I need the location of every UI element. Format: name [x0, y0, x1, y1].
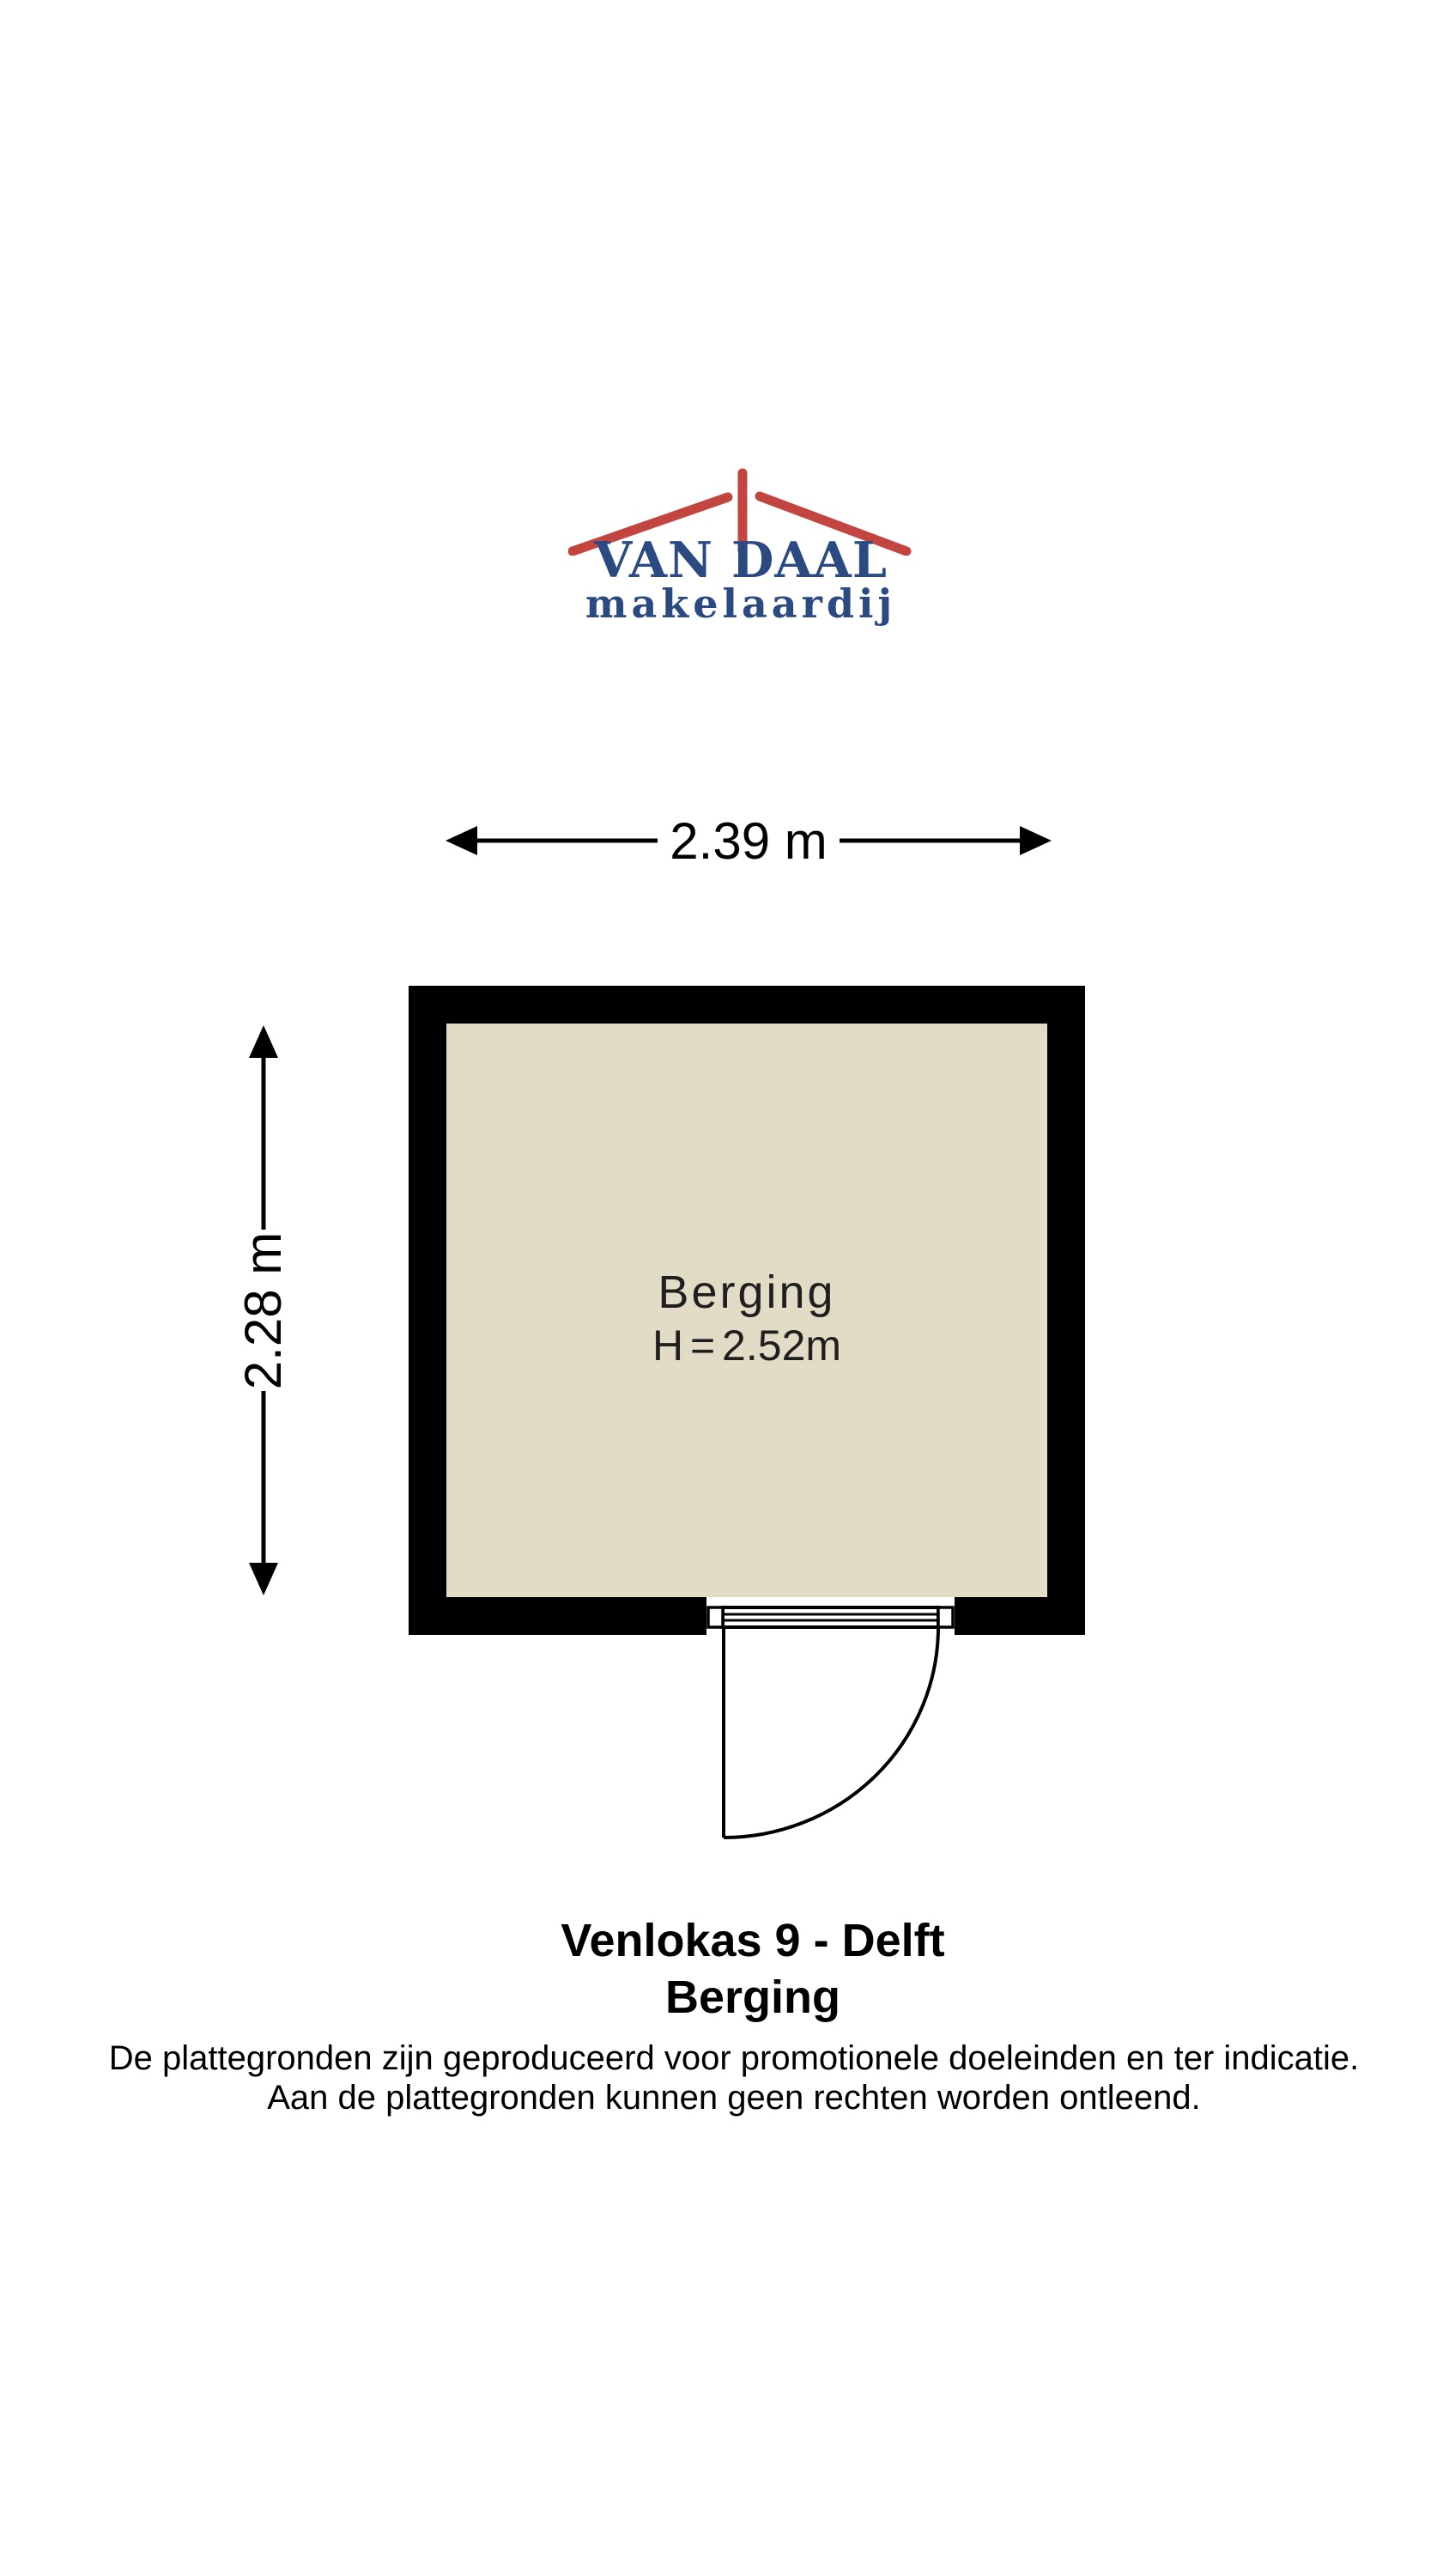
door-jamb-right — [938, 1607, 953, 1627]
floorplan-page: VAN DAAL makelaardij 2.39 m 2.28 m Bergi… — [0, 0, 1449, 2576]
disclaimer-line-1: De plattegronden zijn geproduceerd voor … — [30, 2038, 1438, 2078]
room-label: Berging H = 2.52m — [446, 1266, 1047, 1372]
arrowhead-down-icon — [249, 1563, 278, 1595]
door-swing-arc — [724, 1627, 938, 1838]
door-jamb-left — [708, 1607, 723, 1627]
logo-subtitle: makelaardij — [483, 581, 998, 626]
logo-name: VAN DAAL — [483, 534, 998, 587]
title-address: Venlokas 9 - Delft — [409, 1912, 1096, 1969]
title-room: Berging — [409, 1969, 1096, 2026]
arrowhead-left-icon — [446, 826, 477, 855]
width-dimension: 2.39 m — [443, 810, 1054, 872]
height-dimension-label: 2.28 m — [234, 1231, 294, 1388]
room-ceiling-height-label: H = 2.52m — [446, 1319, 1047, 1372]
door-symbol — [687, 1595, 1047, 1853]
arrowhead-right-icon — [1020, 826, 1052, 855]
room-berging: Berging H = 2.52m — [409, 986, 1085, 1635]
width-dimension-label: 2.39 m — [670, 811, 827, 871]
arrowhead-up-icon — [249, 1025, 278, 1058]
disclaimer: De plattegronden zijn geproduceerd voor … — [30, 2038, 1438, 2117]
title-block: Venlokas 9 - Delft Berging — [409, 1912, 1096, 2026]
door-threshold — [723, 1607, 938, 1627]
room-name-label: Berging — [446, 1266, 1047, 1319]
disclaimer-line-2: Aan de plattegronden kunnen geen rechten… — [30, 2078, 1438, 2117]
height-dimension: 2.28 m — [233, 1024, 294, 1597]
